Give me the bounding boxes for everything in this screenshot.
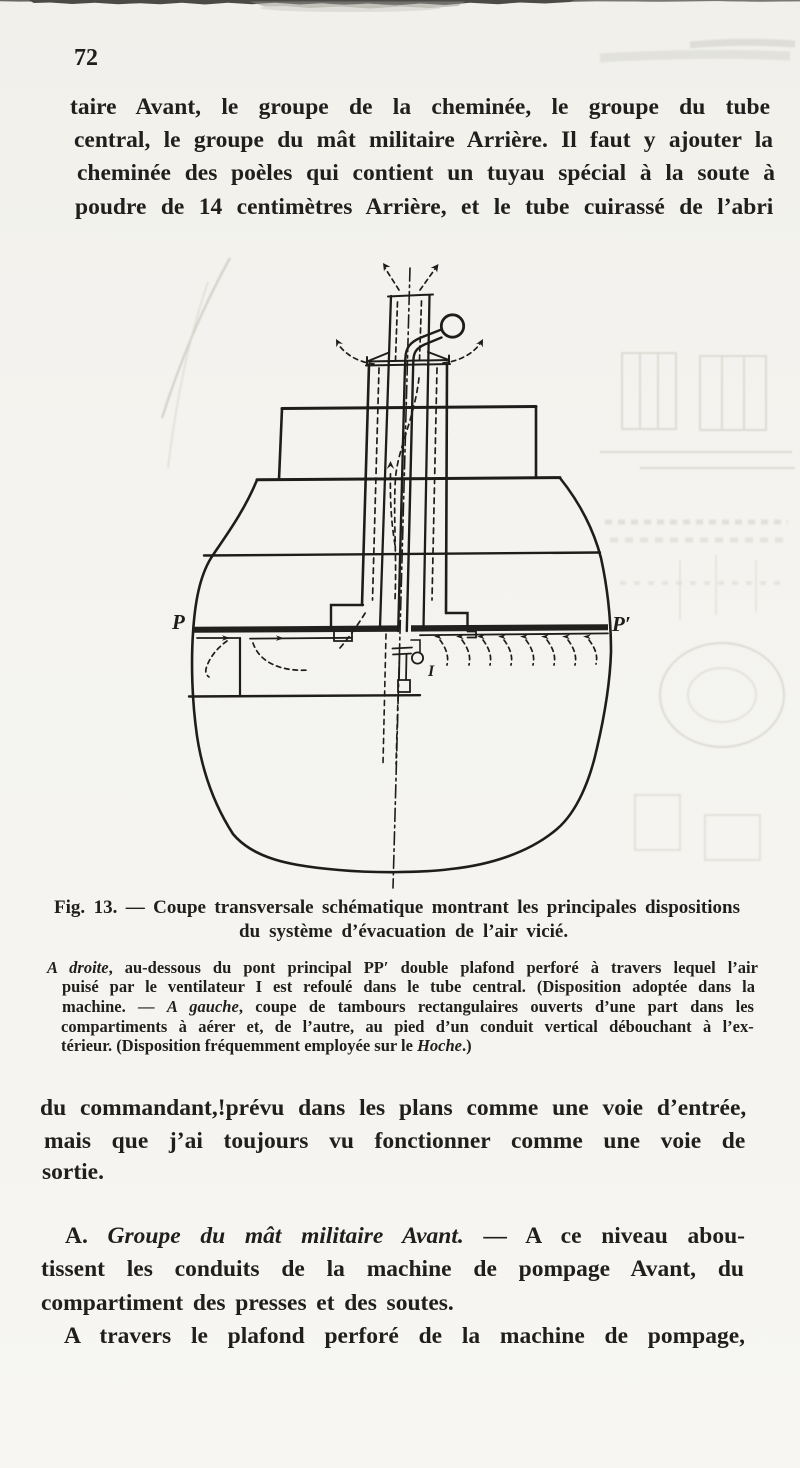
svg-text:P′: P′ <box>611 612 631 636</box>
svg-text:P: P <box>171 610 185 634</box>
svg-text:I: I <box>427 663 435 680</box>
